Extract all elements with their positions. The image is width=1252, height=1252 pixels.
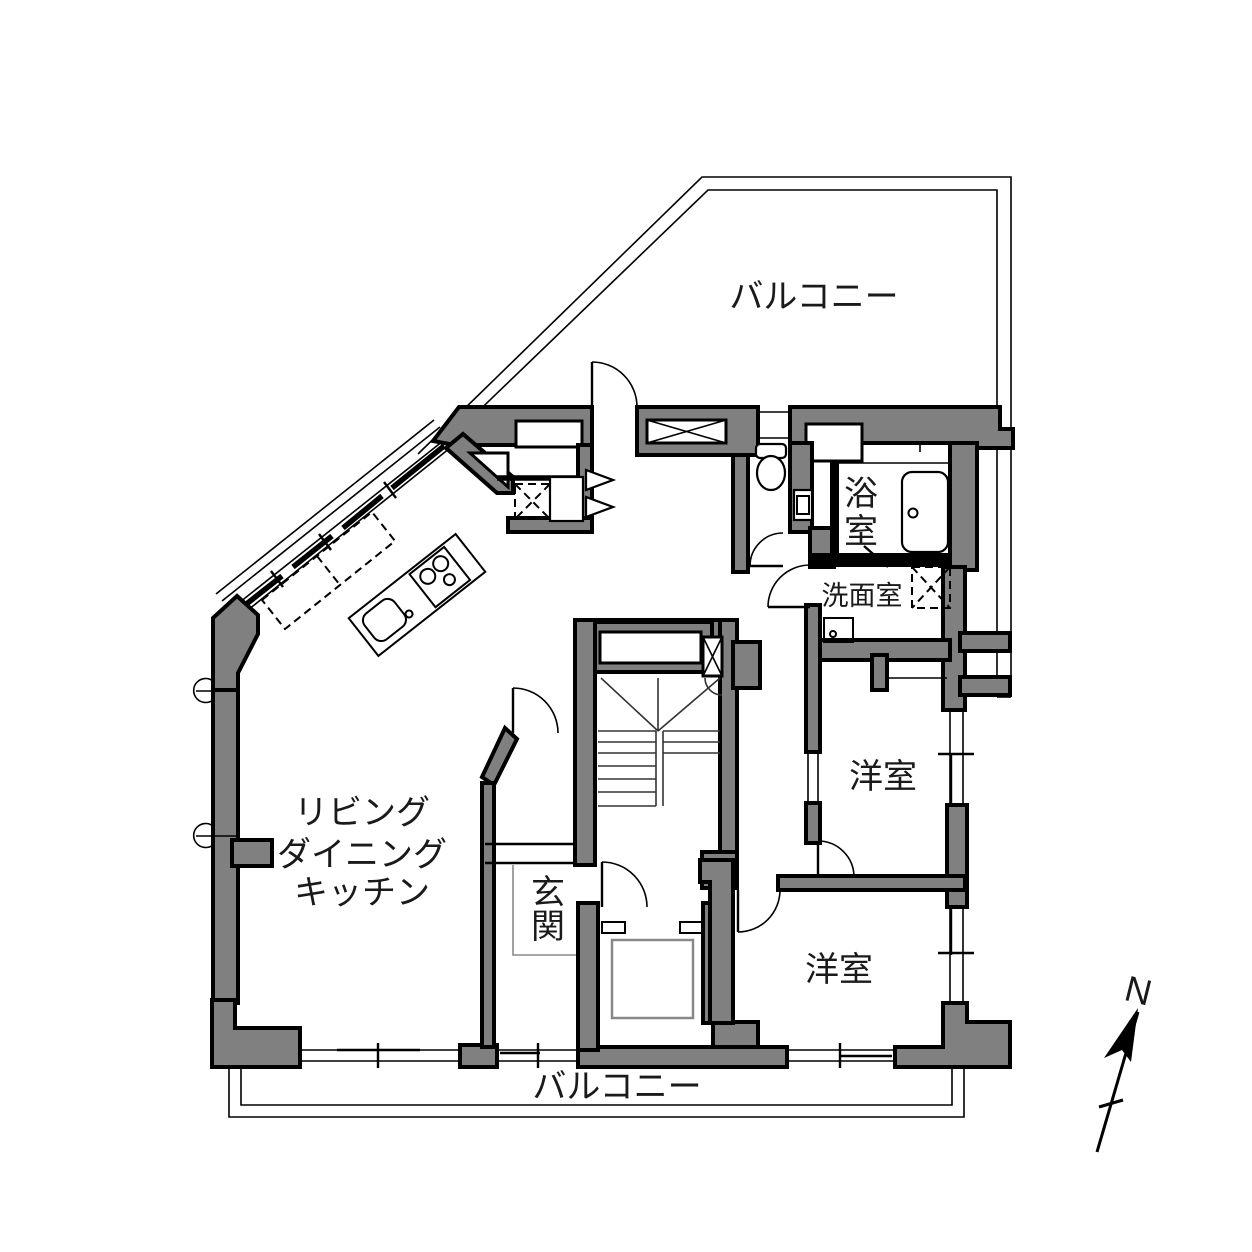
washroom-door-arc [768, 565, 810, 607]
bottom-window-b-sash [500, 1043, 540, 1068]
toilet [756, 444, 786, 490]
bathroom-label-char2: 室 [844, 513, 878, 551]
bottom-window-c-sash [840, 1043, 892, 1068]
washroom-label: 洗面室 [822, 581, 903, 611]
right-wall-stub-lower [960, 677, 1010, 695]
eaves-line-outer [216, 420, 434, 594]
entrance-label-char1: 玄 [531, 874, 565, 912]
vanity-drain-icon [830, 631, 836, 637]
entrance-left-wall [482, 783, 494, 1047]
bottom-window-a [300, 1050, 460, 1061]
bottom-wall-elevator-band [578, 1047, 787, 1067]
ldk-label-line1: リビング [294, 794, 430, 832]
door-swing-arrow-icon [586, 497, 613, 517]
rooms-divider-wall [778, 876, 965, 890]
window-sash-segments [240, 446, 444, 609]
upper-room-left-opening [808, 752, 818, 803]
window-line-outer [230, 437, 448, 610]
stair-stringer [656, 731, 663, 806]
stair-wall-protrusion [733, 642, 760, 688]
corner-block-bottom-right [895, 1003, 1010, 1067]
elevator-left-wall [578, 903, 598, 1050]
entrance-diagonal-wall [482, 728, 517, 785]
bottom-wall-step [713, 1022, 758, 1047]
diagonal-wall [216, 420, 455, 629]
stair-window [600, 632, 701, 663]
floor-plan-drawing: N バルコニー 浴 室 洗面室 洋室 洋室 リビング ダイニング キッチン 玄 … [0, 0, 1252, 1252]
toilet-window [758, 412, 790, 438]
elevator-door-pocket [602, 922, 625, 933]
upper-room-left-wall [806, 605, 820, 752]
upper-room-closet-stub [872, 655, 887, 690]
ldk-label-line2: ダイニング [277, 836, 447, 874]
corner-block-bottom-left [212, 1000, 300, 1067]
bathroom-label-char1: 浴 [844, 475, 878, 513]
balcony-top-label: バルコニー [729, 278, 898, 316]
bathroom [810, 461, 957, 567]
kitchen-counter-dashed [262, 512, 395, 629]
toilet-bowl-icon [757, 456, 785, 490]
ldk-label-line3: キッチン [294, 874, 430, 912]
elevator-door-pocket [680, 922, 703, 933]
bathroom-left-wall [830, 461, 839, 553]
bathroom-bottom-wall [810, 553, 957, 567]
western-room-lower-label: 洋室 [805, 951, 873, 989]
eaves-line-inner [222, 427, 440, 601]
kitchen-counter [349, 534, 486, 656]
upper-room-left-block [806, 803, 820, 843]
upper-room-window-sash [938, 754, 974, 805]
western-room-upper-label: 洋室 [849, 758, 917, 796]
walls-left [194, 596, 272, 1003]
walls-bottom [212, 1000, 895, 1068]
refrigerator-space-cross [515, 484, 550, 519]
balcony-door-arc [592, 362, 637, 407]
stair-treads-right [663, 731, 720, 753]
bathroom-window-niche [806, 424, 862, 461]
stair-winder-lines [601, 678, 720, 731]
right-wall-bath [950, 443, 977, 570]
entrance-label-char2: 関 [531, 908, 565, 946]
floor-plan-page: N バルコニー 浴 室 洗面室 洋室 洋室 リビング ダイニング キッチン 玄 … [0, 0, 1252, 1252]
elevator-car [612, 940, 693, 1018]
lower-room-window-sash [938, 907, 974, 955]
compass: N [1097, 968, 1156, 1152]
front-door-arc [602, 862, 647, 907]
kitchen-island [349, 534, 486, 656]
compass-north-label: N [1121, 968, 1156, 1014]
walls-top-left [433, 407, 613, 532]
left-wall-stub [232, 840, 272, 866]
north-arrow-icon [1104, 1008, 1138, 1062]
upper-room-door-arc [818, 841, 854, 877]
bottom-window-a-sash [337, 1043, 420, 1068]
refrigerator [550, 477, 583, 521]
hall-door-arc [513, 688, 558, 733]
kitchen-niche-window [516, 421, 582, 447]
door-swing-arrow-icon [586, 470, 613, 490]
lower-room-door-arc [738, 890, 780, 932]
stove-burner-icon [442, 572, 457, 587]
stair-treads-left [598, 731, 656, 806]
toilet-door-arc [750, 533, 783, 566]
left-wall-corner [213, 596, 258, 695]
entrance-step-lines [485, 844, 578, 863]
stair-left-wall [575, 620, 595, 865]
balcony-bottom-label: バルコニー [532, 1068, 701, 1106]
right-wall-stub-upper [960, 633, 1010, 651]
toilet-left-wall [733, 455, 748, 572]
